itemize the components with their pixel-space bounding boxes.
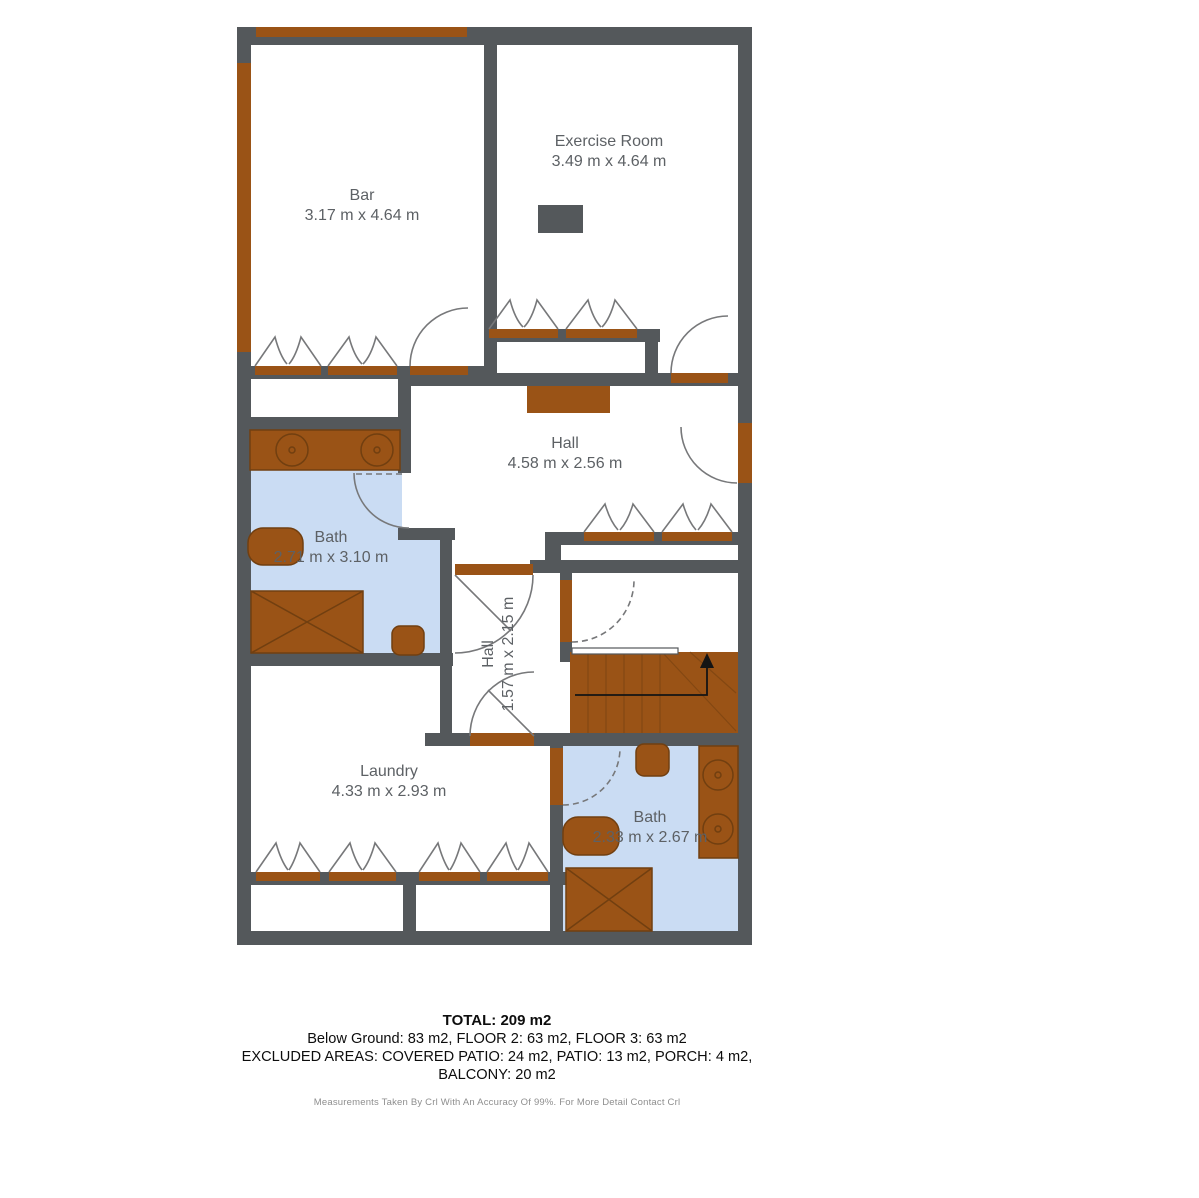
vanity-upper	[250, 430, 400, 470]
room-dims: 1.57 m x 2.15 m	[499, 597, 519, 712]
stair-landing-edge	[572, 648, 678, 654]
room-name: Bar	[305, 186, 420, 206]
room-dims: 4.58 m x 2.56 m	[508, 454, 623, 474]
toilet-upper-icon	[392, 626, 424, 655]
hall-window-arc-2	[662, 504, 732, 532]
room-label-hall-upper: Hall 4.58 m x 2.56 m	[508, 434, 623, 474]
exercise-door-sill	[671, 373, 728, 383]
hall-window-sill-1	[584, 532, 654, 541]
laundry-window-arc-1	[256, 843, 320, 872]
bar-door-arc	[410, 308, 468, 366]
laundry-window-sill-1	[256, 872, 320, 881]
room-dims: 4.33 m x 2.93 m	[332, 782, 447, 802]
laundry-window-sill-2	[329, 872, 396, 881]
hall-entry-door-arc	[681, 427, 737, 483]
bar-window-arc-1	[255, 337, 321, 366]
room-name: Exercise Room	[552, 132, 667, 152]
room-label-laundry: Laundry 4.33 m x 2.93 m	[332, 762, 447, 802]
staircase-body	[570, 652, 738, 733]
bar-window-sill-2	[328, 366, 397, 375]
top-wall-accent	[256, 27, 467, 37]
wall-porch-bottom	[237, 417, 411, 430]
room-label-exercise-room: Exercise Room 3.49 m x 4.64 m	[552, 132, 667, 172]
room-name: Hall	[479, 597, 499, 712]
room-name: Hall	[508, 434, 623, 454]
excluded-areas-text-2: BALCONY: 20 m2	[242, 1066, 753, 1084]
exercise-window-arc-1	[489, 300, 558, 329]
right-wall-door-panel	[738, 423, 752, 483]
bar-window-arc-2	[328, 337, 397, 366]
toilet-lower-icon	[636, 744, 669, 776]
room-name: Bath	[593, 808, 708, 828]
room-dims: 2.71 m x 3.10 m	[274, 548, 389, 568]
bar-window-sill-1	[255, 366, 321, 375]
exercise-equipment-icon	[538, 205, 583, 233]
room-label-bath-upper: Bath 2.71 m x 3.10 m	[274, 528, 389, 568]
excluded-areas-text: EXCLUDED AREAS: COVERED PATIO: 24 m2, PA…	[242, 1048, 753, 1066]
room-label-bath-lower: Bath 2.33 m x 2.67 m	[593, 808, 708, 848]
room-name: Laundry	[332, 762, 447, 782]
total-area-text: TOTAL: 209 m2	[242, 1012, 753, 1030]
room-dims: 3.17 m x 4.64 m	[305, 206, 420, 226]
outer-wall-right	[738, 27, 752, 944]
hall2-door-sill	[455, 564, 533, 575]
room-label-hall-lower: Hall 1.57 m x 2.15 m	[479, 597, 519, 712]
exercise-door-arc	[671, 316, 728, 373]
exercise-window-sill-1	[489, 329, 558, 338]
laundry-window-sill-3	[419, 872, 480, 881]
laundry-window-arc-2	[329, 843, 396, 872]
floor-areas-text: Below Ground: 83 m2, FLOOR 2: 63 m2, FLO…	[242, 1030, 753, 1048]
wall-bath-hall-divider	[440, 528, 452, 745]
room-dims: 2.33 m x 2.67 m	[593, 828, 708, 848]
room-label-bar: Bar 3.17 m x 4.64 m	[305, 186, 420, 226]
wall-bath-upper-bottom	[237, 653, 453, 666]
laundry-door-sill	[470, 733, 534, 746]
entry-door-panel	[527, 386, 610, 413]
wall-hall2-stub	[530, 560, 553, 573]
room-name: Bath	[274, 528, 389, 548]
area-summary: TOTAL: 209 m2 Below Ground: 83 m2, FLOOR…	[242, 1012, 753, 1112]
staircase	[570, 648, 738, 733]
wall-bar-exercise	[484, 27, 497, 378]
hall-window-arc-1	[584, 504, 654, 532]
measurement-disclaimer: Measurements Taken By Crl With An Accura…	[242, 1094, 753, 1112]
laundry-window-arc-3	[419, 843, 480, 872]
floorplan-page: Bar 3.17 m x 4.64 m Exercise Room 3.49 m…	[0, 0, 1199, 1198]
left-wall-accent	[237, 63, 251, 352]
exercise-window-sill-2	[566, 329, 637, 338]
laundry-window-sill-4	[487, 872, 548, 881]
laundry-window-arc-4	[487, 843, 548, 872]
wall-balcony-bottom	[553, 560, 752, 573]
bath-lower-door-sill	[550, 748, 563, 805]
bar-door-sill	[410, 366, 468, 375]
closet-door-arc	[572, 580, 634, 642]
room-dims: 3.49 m x 4.64 m	[552, 152, 667, 172]
hall-window-sill-2	[662, 532, 732, 541]
exercise-window-arc-2	[566, 300, 637, 329]
closet-door-sill	[560, 580, 572, 642]
outer-wall-bottom	[237, 931, 752, 945]
wall-patio-divider	[403, 872, 416, 944]
